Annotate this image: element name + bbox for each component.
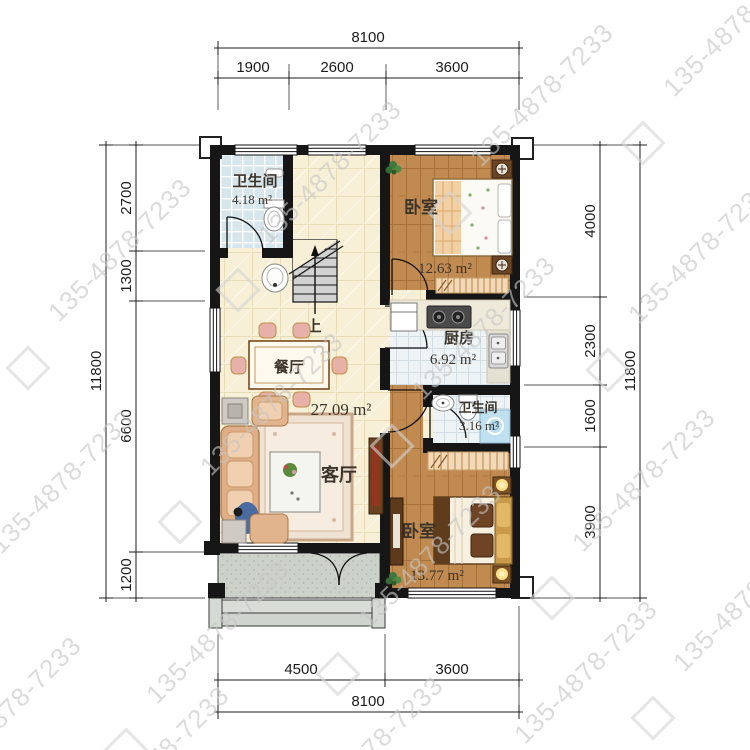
dim-left-seg1: 2700 [118,181,135,214]
dim-right-seg4: 3900 [582,505,599,538]
room-label-dining: 餐厅 [274,358,304,376]
step-post-right [372,598,385,628]
dim-left-seg2: 1300 [118,259,135,292]
pillow [498,220,511,253]
stove-icon [427,306,471,328]
porch [209,553,385,628]
rug-bedroom-top [436,278,508,293]
bed-bottom [434,497,512,564]
dim-bottom-seg1: 4500 [284,661,317,678]
dim-top-total: 8100 [351,29,384,46]
room-area-living: 27.09 m² [311,400,372,419]
sink-icon [489,334,508,368]
chair [293,392,310,407]
dimension-right: 4000 2300 1600 3900 11800 [524,141,647,602]
window-bedroom-bottom-south [408,588,496,598]
dim-top-seg1: 1900 [236,59,269,76]
room-label-bathroom-top: 卫生间 [232,172,277,190]
dim-top-seg2: 2600 [320,59,353,76]
room-area-bathroom-top: 4.18 m² [232,192,272,207]
lamp [493,477,511,494]
wall-center-b [380,348,390,390]
porch-slab [218,553,380,598]
lamp [493,566,511,583]
dim-top-seg3: 3600 [435,59,468,76]
window-dining-left [210,308,220,372]
dim-right-seg1: 4000 [582,204,599,237]
window-bath-mid-right [510,436,520,468]
dim-bottom-seg2: 3600 [435,661,468,678]
window-hall-top [308,145,366,155]
dimension-top: 8100 1900 2600 3600 [214,29,523,110]
dim-right-total: 11800 [622,351,639,392]
tv-cabinet [369,438,383,514]
post-porch-left [208,583,225,598]
dim-right-seg2: 2300 [582,324,599,357]
pillow [498,184,511,217]
floor-plan-page: 8100 1900 2600 3600 4500 3600 8100 [0,0,750,750]
dim-left-seg4: 1200 [118,558,135,591]
chair [293,323,310,338]
window-living-south [238,543,298,553]
step-1 [222,600,372,613]
post-porch-left-top [204,541,220,555]
room-label-bathroom-mid: 卫生间 [458,400,497,415]
dim-bottom-total: 8100 [351,693,384,710]
chair [231,357,246,374]
room-label-living: 客厅 [321,464,357,485]
window-kitchen-right [510,310,520,366]
armchair [250,514,288,543]
room-area-bathroom-mid: 3.16 m² [459,418,499,433]
chair [259,323,276,338]
window-bath-top [235,145,297,155]
pillow [471,504,493,527]
bed-top [433,179,512,256]
wall-kitchen-south [423,385,520,395]
floor-plan-drawing: 8100 1900 2600 3600 4500 3600 8100 [0,0,750,750]
hall-basin [262,264,288,292]
chair [332,357,347,374]
coffee-table [270,452,320,512]
room-area-bedroom-bottom: 13.77 m² [410,568,464,584]
side-table [222,520,246,543]
rug-bedroom-bottom [428,452,508,470]
dim-left-total: 11800 [88,351,105,392]
room-label-bedroom-bottom: 卧室 [402,521,436,541]
room-label-kitchen: 厨房 [444,329,474,347]
window-bedroom-top [415,145,491,155]
room-label-bedroom-top: 卧室 [404,197,438,217]
post-porch-right [375,583,392,598]
room-area-bedroom-top: 12.63 m² [418,261,472,277]
room-area-kitchen: 6.92 m² [430,352,477,368]
step-2 [222,613,372,626]
dimension-left: 2700 1300 6600 1200 11800 [88,141,205,602]
pillow [471,534,493,557]
fridge-icon [391,303,417,331]
step-post-left [209,598,222,628]
dim-right-seg3: 1600 [582,399,599,432]
dim-left-seg3: 6600 [118,409,135,442]
